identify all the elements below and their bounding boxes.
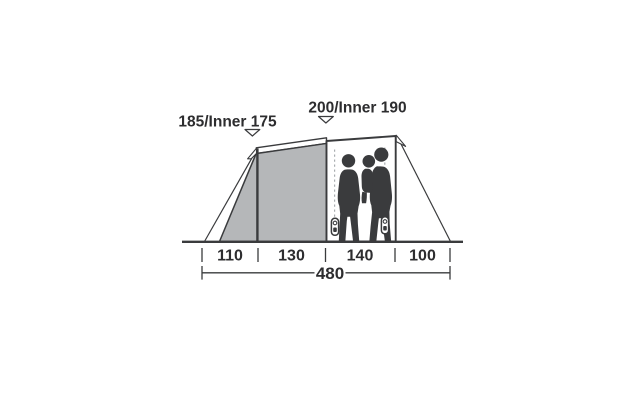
height-label-right: 200/Inner 190 <box>308 100 406 117</box>
diagram-canvas: 185/Inner 175 200/Inner 190 <box>0 0 640 400</box>
chevron-down-icon <box>245 130 260 137</box>
segment-label-100: 100 <box>409 248 436 265</box>
side-panel <box>257 143 326 241</box>
height-label-left: 185/Inner 175 <box>178 114 277 131</box>
child-leg <box>362 192 367 203</box>
chevron-down-icon <box>319 117 334 124</box>
segment-label-110: 110 <box>217 248 243 265</box>
total-length-label: 480 <box>316 264 344 283</box>
segment-label-130: 130 <box>278 248 305 265</box>
guy-line-right <box>397 137 450 242</box>
zipper-pull-left <box>331 218 338 235</box>
segment-label-140: 140 <box>347 248 374 265</box>
tent-dimension-diagram: 185/Inner 175 200/Inner 190 <box>0 0 640 400</box>
child-head <box>363 155 376 168</box>
rear-fabric-panel <box>220 151 258 242</box>
zipper-pull-right <box>381 217 388 234</box>
child-body <box>362 169 373 193</box>
